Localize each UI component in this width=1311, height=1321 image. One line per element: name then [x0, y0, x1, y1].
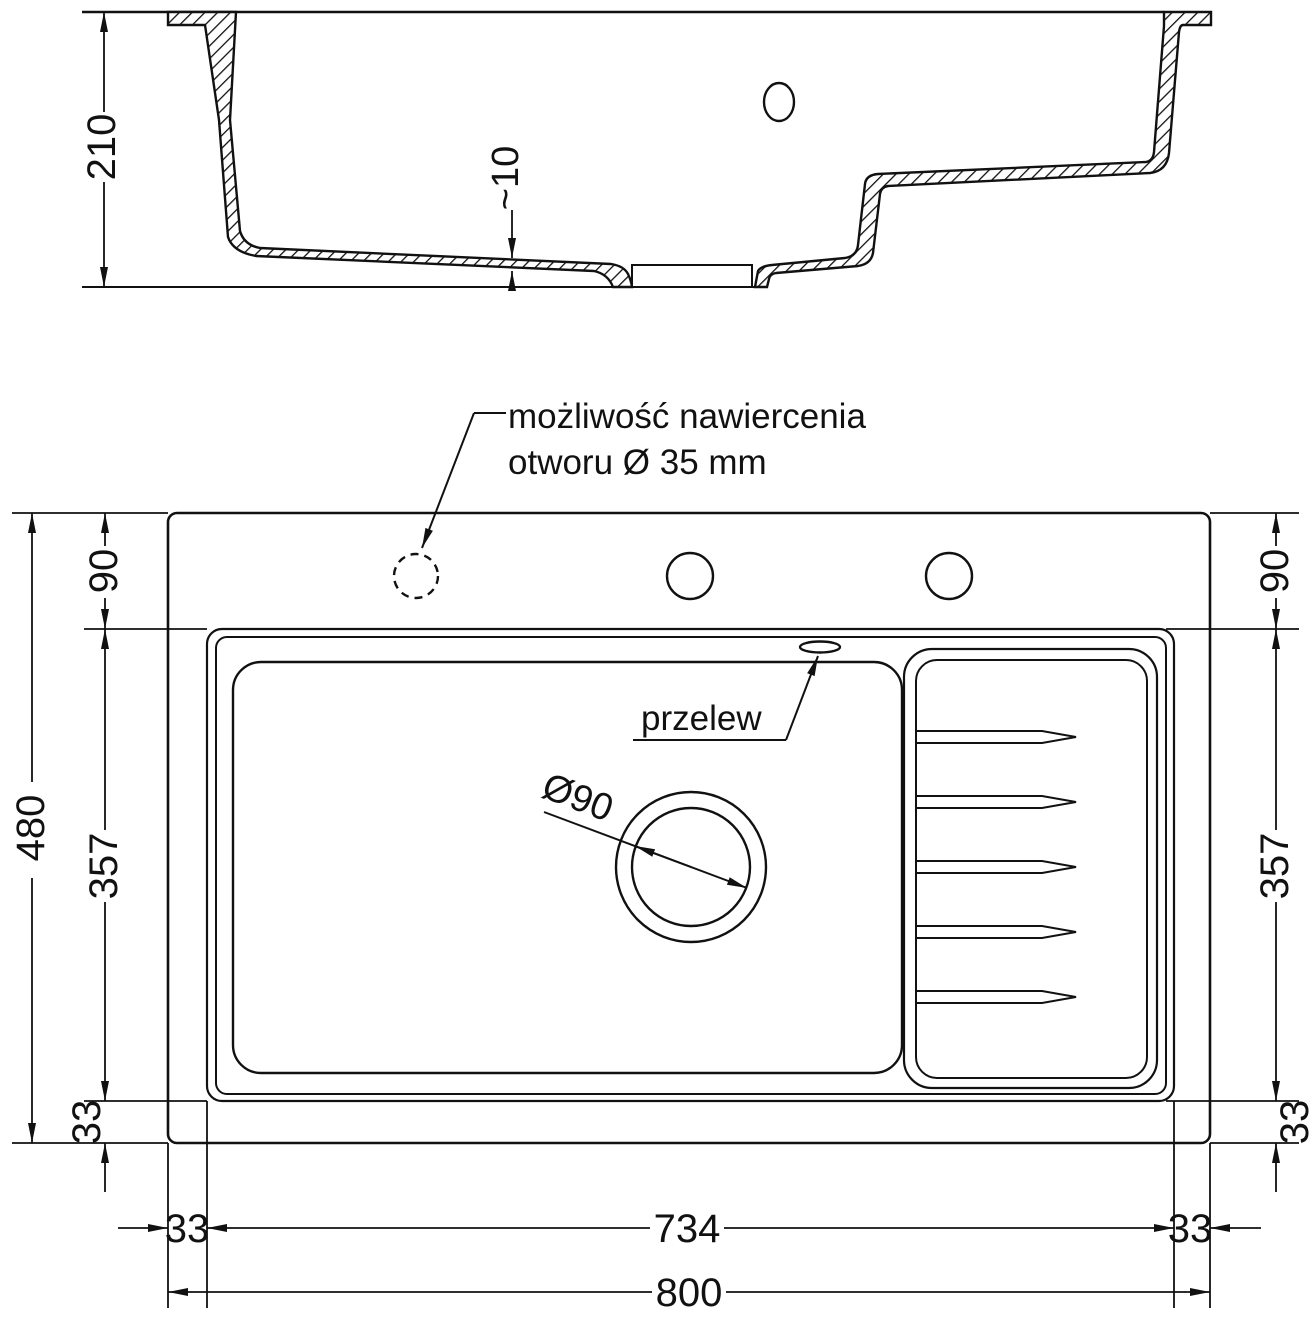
drill-callout-leader: [422, 413, 506, 548]
drainer-rib: [916, 731, 1076, 743]
drainer-rib: [916, 861, 1076, 873]
dim-bottom-inner-label: 734: [654, 1207, 721, 1251]
drill-callout-line2: otworu Ø 35 mm: [508, 443, 767, 482]
dim-right-middle-label: 357: [1253, 833, 1297, 900]
drainer-rib: [916, 991, 1076, 1003]
dim-right-bottom-label: 33: [1273, 1100, 1311, 1145]
faucet-hole-center: [667, 553, 713, 599]
dim-left-overall-label: 480: [9, 795, 53, 862]
drainer-rib: [916, 926, 1076, 938]
section-profile-right: [755, 12, 1211, 287]
dim-drain-diameter: [544, 812, 747, 888]
dim-drain-diameter-label: Ø90: [537, 765, 619, 830]
section-faucet-hole: [764, 83, 794, 121]
section-drain-recess: [632, 265, 752, 287]
sink-technical-drawing: 210 ~10: [0, 0, 1311, 1321]
faucet-hole-right: [926, 553, 972, 599]
dim-left-bottom-label: 33: [65, 1100, 109, 1145]
dim-bottom-overall-label: 800: [656, 1271, 723, 1315]
dim-left-middle-label: 357: [82, 833, 126, 900]
section-view: 210 ~10: [80, 12, 1211, 287]
plan-bowl: [233, 662, 902, 1073]
faucet-hole-optional-dashed: [394, 554, 438, 598]
dim-floor-thickness-label: ~10: [485, 146, 527, 210]
dim-right-top-label: 90: [1253, 549, 1297, 594]
drill-callout-line1: możliwość nawiercenia: [508, 397, 866, 436]
dim-bottom-left-margin-label: 33: [165, 1207, 210, 1251]
dim-left-top-label: 90: [82, 549, 126, 594]
section-profile-left: [168, 12, 632, 287]
dim-bottom-right-margin-label: 33: [1168, 1207, 1213, 1251]
overflow-slot: [800, 642, 840, 653]
dim-section-height-label: 210: [80, 114, 124, 181]
overflow-callout-label: przelew: [641, 699, 762, 738]
drainer-rib: [916, 796, 1076, 808]
plan-view: Ø90 przelew możliwość nawiercenia otworu…: [168, 397, 1210, 1143]
